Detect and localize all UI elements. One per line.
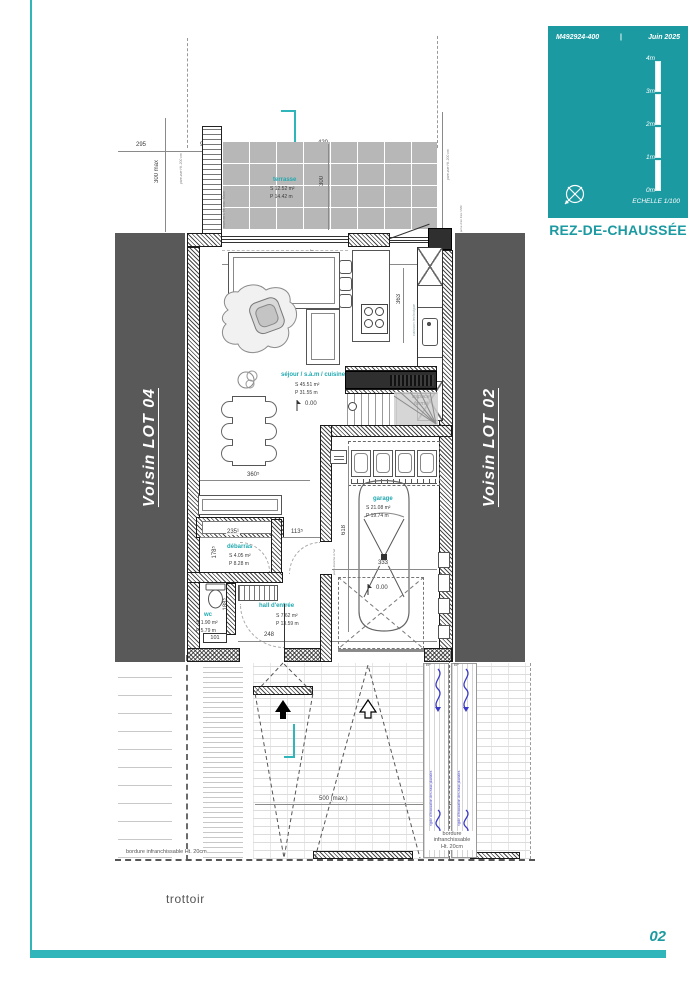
dim-618: 618	[340, 525, 348, 535]
page-number: 02	[620, 928, 666, 945]
dining-chair	[265, 445, 277, 462]
neighbor-right-label: Voisin LOT 02	[481, 388, 499, 507]
scale-bar-segment	[655, 94, 661, 125]
bar-stool	[339, 277, 352, 291]
terrasse-name: terrasse	[273, 177, 296, 183]
garage-door-cross	[338, 577, 424, 649]
interior-dashed-line	[222, 250, 348, 251]
scale-bar-segment	[655, 61, 661, 92]
dim-113: 113⁵	[290, 529, 304, 535]
garage-hall-wall-upper	[320, 425, 332, 542]
dining-chair	[221, 401, 233, 418]
dim-178: 178⁵	[211, 546, 219, 559]
wall-fixture	[438, 552, 450, 568]
sink-unit	[418, 308, 442, 358]
kitchen-window-door	[390, 237, 430, 243]
exterior-wall-bottom	[424, 648, 452, 662]
dim-line-300max-left	[165, 118, 166, 232]
rug-with-armchair	[214, 280, 306, 358]
terrace-paving	[222, 142, 437, 230]
garage-door-line	[338, 649, 424, 652]
page-frame-left-line	[30, 0, 32, 958]
burner	[364, 319, 373, 328]
scale-bar-segment	[655, 160, 661, 191]
scale-tick-4m: 4m	[646, 55, 655, 62]
page-frame-bottom-bar	[30, 950, 666, 958]
burner	[375, 307, 384, 316]
coat-rack	[238, 585, 278, 601]
bar-stool	[339, 294, 352, 308]
exterior-wall-top-mid	[348, 233, 390, 247]
level-value: 0.00	[304, 401, 318, 407]
dim-line-300-terrace	[328, 144, 329, 230]
rain-gutter-label-left: rigole d'évacuation des eaux pluviales	[430, 698, 433, 826]
property-line-left	[187, 38, 188, 148]
beam-texture	[390, 375, 434, 386]
dim-300-terrace: 300	[318, 176, 326, 186]
murs-en-l-label: murs en L Ht max. 50cm	[222, 166, 226, 228]
project-code: M492924-400	[556, 34, 599, 41]
dim-line-333	[332, 569, 437, 570]
pare-vue-left-label: pare-vue Ht. 200 cm	[179, 130, 183, 184]
burner	[375, 319, 384, 328]
wall-fixture	[438, 625, 450, 639]
dining-chair	[265, 423, 277, 440]
dim-360: 360⁵	[246, 472, 261, 478]
stair-beam	[345, 371, 437, 389]
sejour-surface: S 45.51 m²	[295, 383, 319, 388]
floor-plan-sheet: { "legend": { "code": "M492924-400", "se…	[0, 0, 699, 988]
door-swing-garage	[289, 542, 320, 574]
bar-stool	[339, 260, 352, 274]
scale-tick-1m: 1m	[646, 154, 655, 161]
pare-vue-right-label: pare-vue Ht. 200 cm	[446, 126, 450, 180]
wc-surface: S 1.90 m²	[196, 621, 218, 626]
caisson-technique-label: caisson technique	[411, 256, 416, 336]
terrasse-perimeter: P 14.42 m	[270, 195, 293, 200]
scale-bar-segment	[655, 127, 661, 158]
garage-top-wall	[320, 425, 452, 437]
washing-machine	[330, 450, 347, 464]
terrace-sliding-window	[222, 236, 348, 243]
garage-perimeter: P 19.74 m	[366, 514, 389, 519]
bordure-line3: Ht. 20cm	[428, 844, 476, 850]
espace-ferme-label: espace fermé	[406, 394, 436, 408]
property-line-channel	[449, 655, 450, 859]
faucet	[427, 322, 431, 326]
bordure-right-label: bordure infranchissable Ht. 20cm	[428, 831, 476, 850]
locker-inner	[420, 453, 434, 473]
vehicle-access-template	[250, 660, 535, 865]
trottoir-label: trottoir	[166, 892, 205, 906]
locker-inner	[354, 453, 368, 473]
dim-line-363	[403, 268, 404, 343]
planting-strip	[203, 666, 243, 858]
scale-tick-3m: 3m	[646, 88, 655, 95]
scale-text: ECHELLE 1/100	[632, 198, 680, 205]
neighbor-left-label: Voisin LOT 04	[141, 388, 159, 507]
property-line-bottom-left	[186, 655, 188, 859]
bordure-line2: infranchissable	[428, 837, 476, 843]
dim-line-235	[200, 537, 320, 538]
wall-fixture	[438, 598, 450, 614]
garage-hall-wall-lower	[320, 574, 332, 662]
flow-arrow-icon	[430, 667, 446, 713]
sejour-name: séjour / s.à.m / cuisine	[281, 372, 345, 378]
section-mark	[294, 110, 296, 142]
header-separator: |	[620, 34, 622, 41]
wall-fixture	[438, 574, 450, 592]
burner	[364, 307, 373, 316]
dim-300max-left: 300 max	[153, 160, 161, 183]
tall-unit-cell	[418, 248, 442, 286]
dim-line-300max-right	[442, 112, 443, 232]
scale-tick-0m: 0m	[646, 187, 655, 194]
garage-surface: S 21.08 m²	[366, 506, 390, 511]
legend-box: M492924-400 | Juin 2025 4m 3m 2m 1m 0m E…	[548, 26, 688, 218]
washer-symbol	[334, 455, 344, 460]
wc-name: wc	[204, 612, 212, 618]
exterior-wall-bottom	[187, 648, 240, 662]
neighbor-band-right: Voisin LOT 02	[455, 233, 525, 662]
level-marker-icon	[293, 400, 302, 411]
neighbor-band-left: Voisin LOT 04	[115, 233, 185, 662]
dim-500-max: 500 (max.)	[318, 796, 349, 802]
sejour-perimeter: P 31.55 m	[295, 391, 318, 396]
bordure-left-label: bordure infranchissable Ht. 20cm	[126, 849, 207, 855]
scale-tick-2m: 2m	[646, 121, 655, 128]
dim-295: 295	[135, 142, 147, 148]
exterior-wall-top-left	[187, 233, 222, 247]
dining-table	[232, 396, 266, 466]
door-swing-debarras	[240, 542, 270, 572]
rain-gutter-label-right: rigole d'évacuation des eaux pluviales	[458, 698, 461, 826]
dining-chair	[221, 423, 233, 440]
entry-door-leaf	[284, 604, 285, 648]
air-intake-label: prise d'air frais VMC	[460, 200, 469, 232]
dim-235: 235¹	[226, 529, 240, 535]
project-date: Juin 2025	[648, 34, 680, 41]
stair-newel	[348, 402, 357, 411]
property-line-right	[437, 36, 438, 148]
garage-name: garage	[373, 496, 393, 502]
site-boundary-bottom	[115, 859, 535, 861]
dim-101-box: 101	[203, 633, 227, 643]
plant	[234, 366, 262, 394]
partition-debarras-side	[271, 519, 282, 573]
dining-chair	[265, 401, 277, 418]
planting-strip	[118, 666, 172, 858]
partition-debarras-bottom	[187, 572, 283, 583]
terrasse-surface: S 12.52 m²	[270, 187, 294, 192]
flow-arrow-icon	[458, 667, 474, 713]
locker-inner	[398, 453, 412, 473]
tall-unit-cell	[418, 286, 442, 308]
north-compass-icon	[560, 182, 588, 210]
dim-line-360	[200, 480, 310, 481]
exterior-wall-left	[187, 247, 200, 662]
dim-333: 333	[377, 560, 389, 566]
sheet-title: REZ-DE-CHAUSSÉE	[548, 222, 688, 238]
sideboard-inner	[202, 499, 278, 511]
sofa-chaise-seat	[311, 313, 335, 360]
terrace-screen-wall	[202, 126, 222, 236]
dim-363: 363	[395, 294, 403, 304]
locker-inner	[376, 453, 390, 473]
partition-wc	[226, 583, 236, 635]
dining-chair	[221, 445, 233, 462]
